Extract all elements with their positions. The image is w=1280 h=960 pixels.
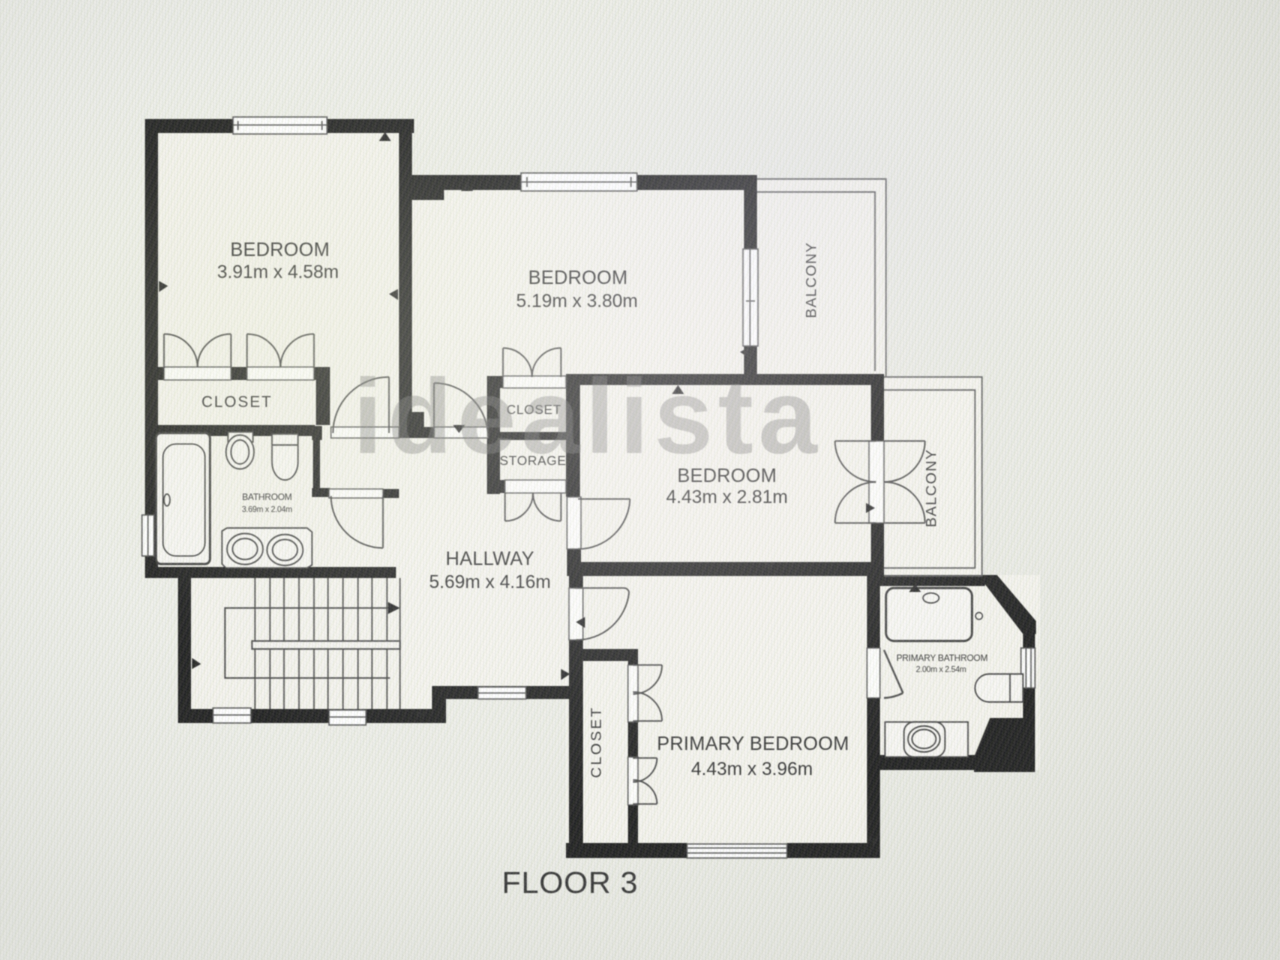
svg-text:BALCONY: BALCONY	[923, 449, 940, 528]
svg-text:BEDROOM: BEDROOM	[528, 268, 628, 289]
svg-text:HALLWAY: HALLWAY	[446, 549, 535, 570]
svg-text:FLOOR 3: FLOOR 3	[502, 865, 638, 900]
svg-text:idealista: idealista	[353, 358, 822, 476]
svg-text:BATHROOM: BATHROOM	[242, 492, 292, 502]
svg-text:PRIMARY BATHROOM: PRIMARY BATHROOM	[896, 653, 987, 663]
svg-text:BALCONY: BALCONY	[804, 242, 820, 318]
svg-text:3.91m x 4.58m: 3.91m x 4.58m	[217, 261, 339, 282]
svg-text:3.69m x 2.04m: 3.69m x 2.04m	[242, 505, 293, 514]
svg-text:4.43m x 2.81m: 4.43m x 2.81m	[666, 486, 788, 507]
svg-text:CLOSET: CLOSET	[201, 394, 272, 411]
svg-text:5.19m x 3.80m: 5.19m x 3.80m	[516, 290, 638, 311]
svg-text:PRIMARY BEDROOM: PRIMARY BEDROOM	[657, 734, 849, 755]
svg-text:CLOSET: CLOSET	[588, 706, 605, 778]
svg-text:BEDROOM: BEDROOM	[230, 240, 330, 261]
svg-text:4.43m x 3.96m: 4.43m x 3.96m	[691, 758, 813, 779]
svg-text:5.69m x 4.16m: 5.69m x 4.16m	[429, 571, 551, 592]
svg-text:2.00m x 2.54m: 2.00m x 2.54m	[916, 665, 967, 674]
